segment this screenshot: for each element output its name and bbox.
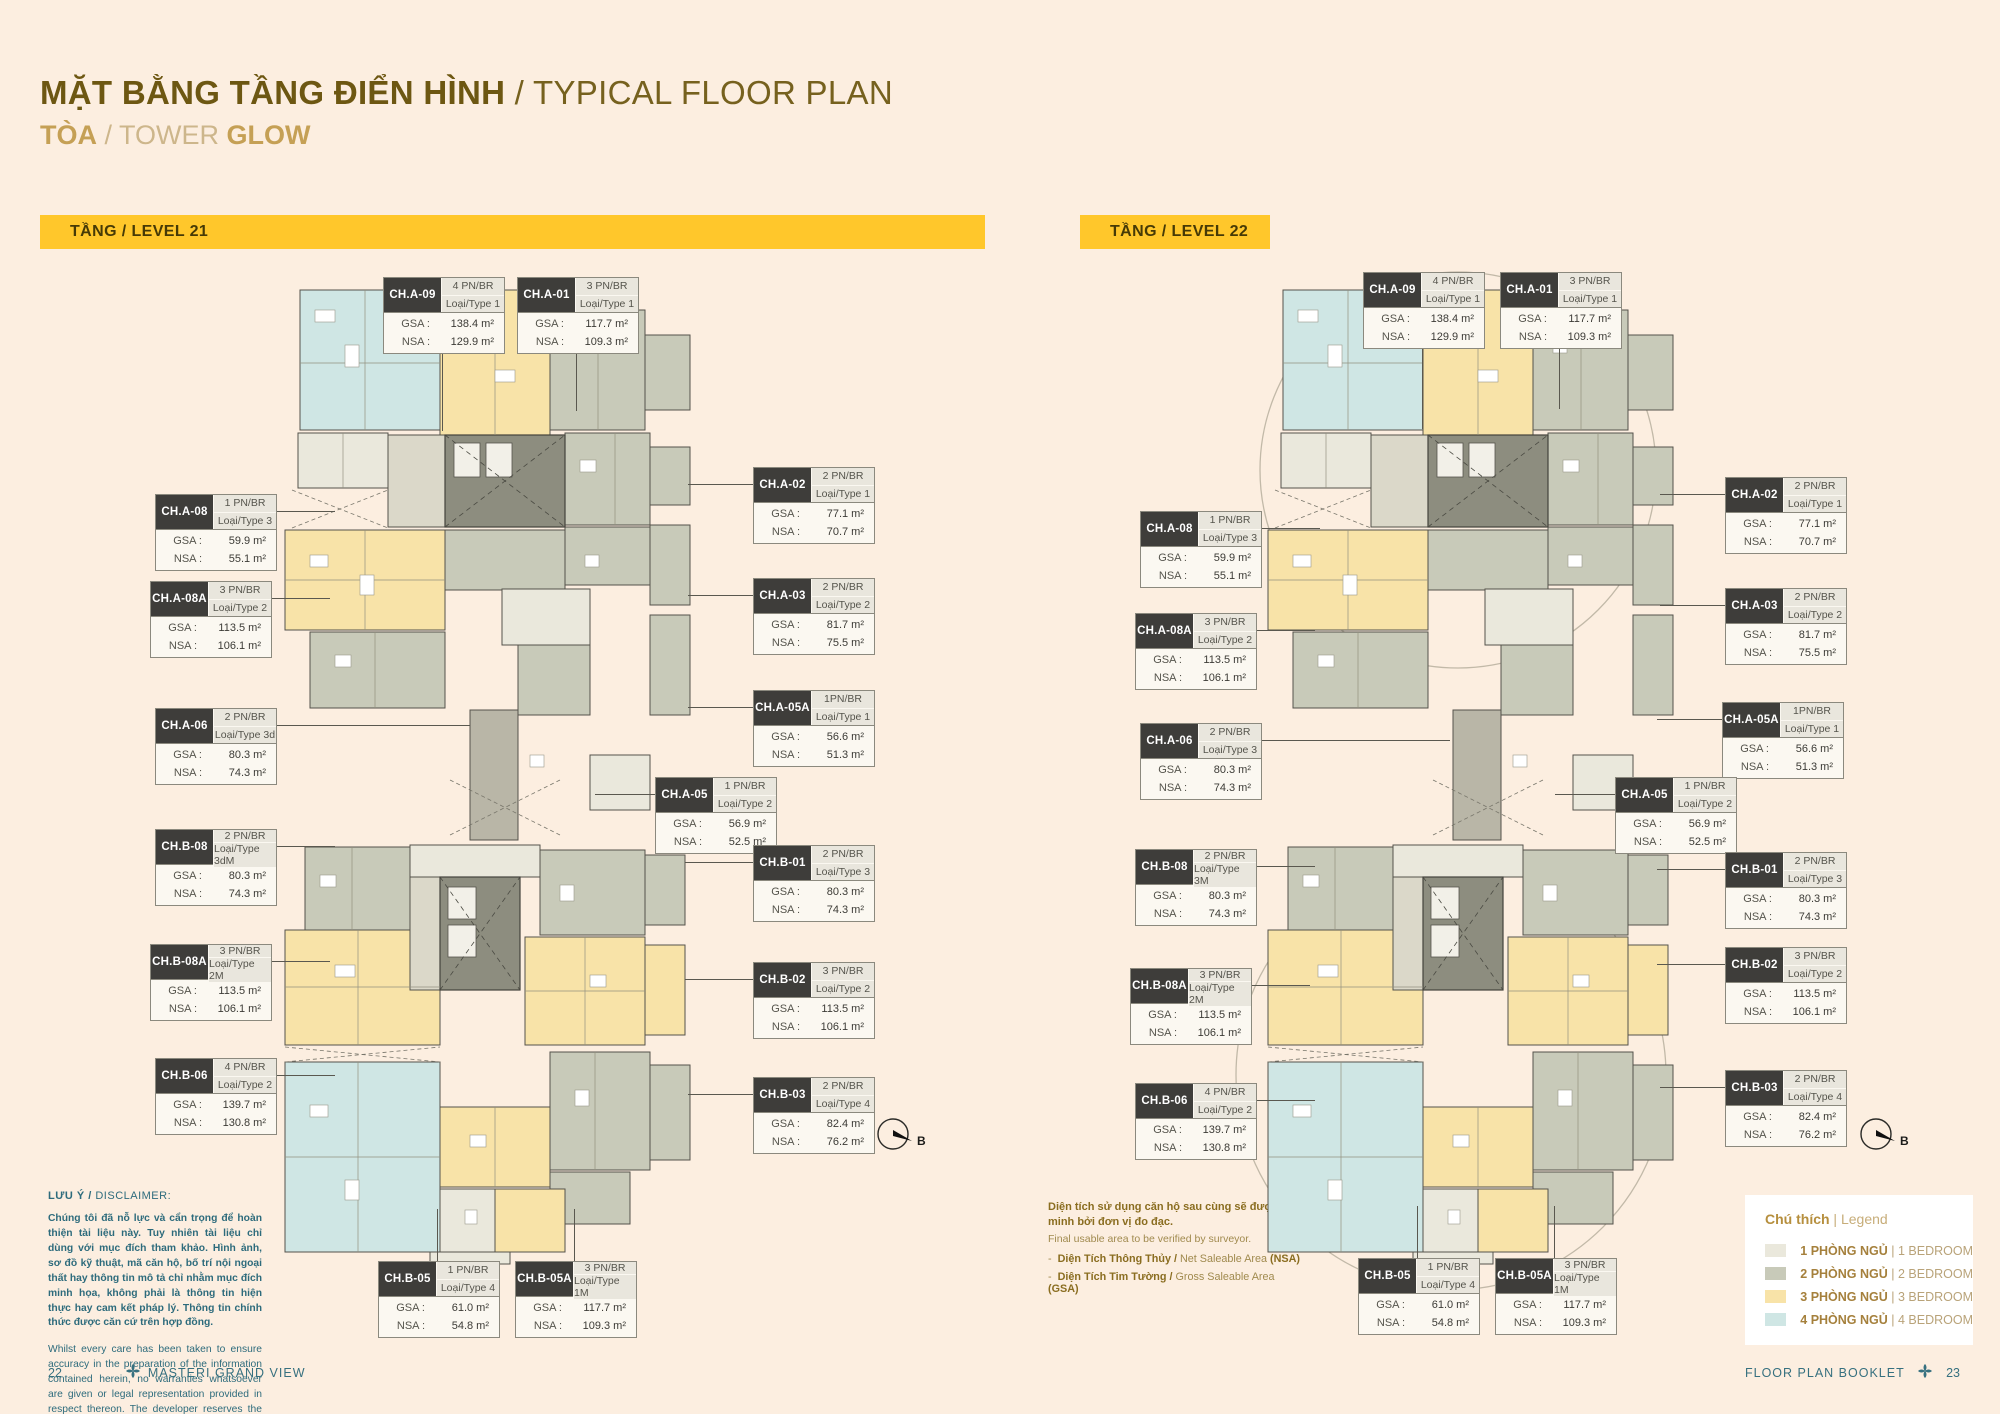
unit-code: CH.B-03 (754, 1078, 811, 1112)
gsa-label: GSA : (1726, 890, 1772, 908)
unit-callout: CH.B-08A 3 PN/BR Loại/Type 2M GSA :113.5… (150, 944, 272, 1021)
unit-type: Loại/Type 2 (811, 981, 874, 998)
gsa-value: 61.0 m² (425, 1299, 499, 1317)
nsa-label: NSA : (1726, 1003, 1772, 1021)
nsa-value: 130.8 m² (202, 1114, 276, 1132)
unit-bedrooms: 1PN/BR (811, 691, 874, 709)
disclaimer-body-vi: Chúng tôi đã nỗ lực và cẩn trọng để hoàn… (48, 1212, 262, 1331)
nsa-label: NSA : (384, 333, 430, 351)
unit-bedrooms: 1 PN/BR (713, 778, 776, 796)
unit-code: CH.A-05A (754, 691, 811, 725)
gsa-label: GSA : (156, 867, 202, 885)
callout-leader-line (1555, 794, 1615, 795)
nsa-label: NSA : (156, 1114, 202, 1132)
footer-left: 22 MASTERI GRAND VIEW (48, 1364, 306, 1381)
callout-leader-line (1417, 1206, 1418, 1258)
nsa-label: NSA : (1359, 1314, 1405, 1332)
unit-type: Loại/Type 2 (1193, 632, 1256, 649)
svg-text:B: B (1900, 1134, 1909, 1148)
gsa-value: 113.5 m² (1177, 1006, 1251, 1024)
gsa-label: GSA : (156, 532, 202, 550)
gsa-value: 80.3 m² (1187, 761, 1261, 779)
nsa-label: NSA : (156, 885, 202, 903)
unit-callout: CH.A-09 4 PN/BR Loại/Type 1 GSA :138.4 m… (1363, 272, 1485, 349)
north-arrow-icon: B (876, 1116, 946, 1161)
nsa-value: 109.3 m² (564, 333, 638, 351)
unit-bedrooms: 1 PN/BR (436, 1262, 499, 1280)
gsa-value: 56.9 m² (1662, 815, 1736, 833)
footer-right: FLOOR PLAN BOOKLET 23 (1745, 1364, 1960, 1381)
nsa-label: NSA : (656, 833, 702, 851)
unit-type: Loại/Type 1 (811, 709, 874, 726)
unit-callout: CH.B-02 3 PN/BR Loại/Type 2 GSA :113.5 m… (1725, 947, 1847, 1024)
unit-bedrooms: 4 PN/BR (1421, 273, 1484, 291)
callout-leader-line (576, 349, 577, 411)
gsa-label: GSA : (1359, 1296, 1405, 1314)
gsa-value: 56.6 m² (1769, 740, 1843, 758)
callout-leader-line (270, 961, 330, 962)
gsa-label: GSA : (1726, 626, 1772, 644)
floor-plan (1223, 275, 1743, 1265)
callout-leader-line (442, 349, 443, 431)
unit-callout: CH.B-01 2 PN/BR Loại/Type 3 GSA :80.3 m²… (1725, 852, 1847, 929)
legend-card: Chú thích | Legend 1 PHÒNG NGỦ | 1 BEDRO… (1745, 1195, 1973, 1345)
unit-callout: CH.A-02 2 PN/BR Loại/Type 1 GSA :77.1 m²… (1725, 477, 1847, 554)
gsa-label: GSA : (1136, 887, 1182, 905)
callout-leader-line (1250, 985, 1310, 986)
gsa-value: 138.4 m² (430, 315, 504, 333)
gsa-value: 117.7 m² (1542, 1296, 1616, 1314)
callout-leader-line (1422, 344, 1423, 429)
unit-code: CH.B-05 (1359, 1259, 1416, 1293)
unit-callout: CH.B-03 2 PN/BR Loại/Type 4 GSA :82.4 m²… (1725, 1070, 1847, 1147)
nsa-label: NSA : (754, 1133, 800, 1151)
brand-name: MASTERI GRAND VIEW (148, 1366, 306, 1380)
gsa-value: 117.7 m² (562, 1299, 636, 1317)
page-title-en: / TYPICAL FLOOR PLAN (505, 74, 893, 111)
unit-type: Loại/Type 1 (1780, 721, 1843, 738)
callout-leader-line (275, 725, 470, 726)
nsa-value: 52.5 m² (1662, 833, 1736, 851)
unit-type: Loại/Type 3 (1198, 530, 1261, 547)
nsa-label: NSA : (754, 901, 800, 919)
gsa-label: GSA : (754, 883, 800, 901)
level-banner: TẦNG / LEVEL 22 (1080, 215, 1270, 249)
unit-code: CH.B-05 (379, 1262, 436, 1296)
unit-callout: CH.B-03 2 PN/BR Loại/Type 4 GSA :82.4 m²… (753, 1077, 875, 1154)
nsa-label: NSA : (516, 1317, 562, 1335)
gsa-value: 80.3 m² (1772, 890, 1846, 908)
callout-leader-line (688, 707, 753, 708)
unit-callout: CH.B-08 2 PN/BR Loại/Type 3dM GSA :80.3 … (155, 829, 277, 906)
legend-swatch (1765, 1267, 1786, 1280)
gsa-value: 56.9 m² (702, 815, 776, 833)
page-title: MẶT BẰNG TẦNG ĐIỂN HÌNH / TYPICAL FLOOR … (40, 74, 893, 112)
unit-code: CH.A-08A (1136, 614, 1193, 648)
unit-code: CH.B-06 (1136, 1084, 1193, 1118)
unit-type: Loại/Type 3d (213, 727, 276, 744)
gsa-label: GSA : (1141, 761, 1187, 779)
callout-leader-line (1260, 740, 1450, 741)
unit-type: Loại/Type 1 (441, 296, 504, 313)
unit-callout: CH.A-05 1 PN/BR Loại/Type 2 GSA :56.9 m²… (1615, 777, 1737, 854)
unit-bedrooms: 3 PN/BR (1783, 948, 1846, 966)
nsa-label: NSA : (1141, 779, 1187, 797)
callout-leader-line (688, 1094, 753, 1095)
unit-bedrooms: 2 PN/BR (811, 846, 874, 864)
gsa-value: 113.5 m² (197, 619, 271, 637)
unit-code: CH.B-01 (754, 846, 811, 880)
nsa-value: 109.3 m² (1542, 1314, 1616, 1332)
unit-type: Loại/Type 3 (811, 864, 874, 881)
gsa-label: GSA : (656, 815, 702, 833)
unit-type: Loại/Type 1 (1558, 291, 1621, 308)
unit-callout: CH.A-08 1 PN/BR Loại/Type 3 GSA :59.9 m²… (1140, 511, 1262, 588)
unit-bedrooms: 3 PN/BR (1558, 273, 1621, 291)
gsa-label: GSA : (379, 1299, 425, 1317)
unit-bedrooms: 3 PN/BR (811, 963, 874, 981)
unit-bedrooms: 3 PN/BR (573, 1262, 636, 1275)
unit-callout: CH.A-01 3 PN/BR Loại/Type 1 GSA :117.7 m… (517, 277, 639, 354)
unit-callout: CH.A-05 1 PN/BR Loại/Type 2 GSA :56.9 m²… (655, 777, 777, 854)
unit-type: Loại/Type 3M (1193, 863, 1256, 887)
unit-type: Loại/Type 4 (436, 1280, 499, 1297)
unit-code: CH.A-09 (1364, 273, 1421, 307)
unit-type: Loại/Type 2 (713, 796, 776, 813)
gsa-value: 113.5 m² (1772, 985, 1846, 1003)
unit-code: CH.B-02 (1726, 948, 1783, 982)
nsa-value: 55.1 m² (202, 550, 276, 568)
nsa-label: NSA : (1496, 1314, 1542, 1332)
nsa-label: NSA : (1131, 1024, 1177, 1042)
gsa-label: GSA : (156, 746, 202, 764)
svg-text:B: B (917, 1134, 926, 1148)
gsa-label: GSA : (1131, 1006, 1177, 1024)
gsa-value: 117.7 m² (564, 315, 638, 333)
gsa-value: 138.4 m² (1410, 310, 1484, 328)
unit-code: CH.A-03 (754, 579, 811, 613)
gsa-label: GSA : (754, 1115, 800, 1133)
nsa-label: NSA : (156, 764, 202, 782)
nsa-value: 55.1 m² (1187, 567, 1261, 585)
legend-swatch (1765, 1313, 1786, 1326)
unit-type: Loại/Type 2 (213, 1077, 276, 1094)
unit-callout: CH.A-01 3 PN/BR Loại/Type 1 GSA :117.7 m… (1500, 272, 1622, 349)
unit-bedrooms: 1 PN/BR (1416, 1259, 1479, 1277)
unit-callout: CH.A-06 2 PN/BR Loại/Type 3d GSA :80.3 m… (155, 708, 277, 785)
callout-leader-line (1657, 964, 1725, 965)
footer-page-number-left: 22 (48, 1366, 62, 1380)
unit-type: Loại/Type 2M (1188, 982, 1251, 1006)
unit-bedrooms: 2 PN/BR (213, 709, 276, 727)
gsa-value: 113.5 m² (800, 1000, 874, 1018)
unit-type: Loại/Type 3 (213, 513, 276, 530)
unit-callout: CH.B-05 1 PN/BR Loại/Type 4 GSA :61.0 m²… (378, 1261, 500, 1338)
unit-code: CH.B-08A (151, 945, 208, 979)
gsa-label: GSA : (516, 1299, 562, 1317)
unit-bedrooms: 2 PN/BR (811, 1078, 874, 1096)
nsa-value: 74.3 m² (1182, 905, 1256, 923)
nsa-value: 106.1 m² (1177, 1024, 1251, 1042)
callout-leader-line (574, 1209, 575, 1261)
gsa-label: GSA : (151, 982, 197, 1000)
unit-code: CH.A-01 (518, 278, 575, 312)
callout-leader-line (1554, 1206, 1555, 1258)
nsa-value: 76.2 m² (1772, 1126, 1846, 1144)
unit-code: CH.A-05 (656, 778, 713, 812)
gsa-label: GSA : (1136, 651, 1182, 669)
unit-callout: CH.B-01 2 PN/BR Loại/Type 3 GSA :80.3 m²… (753, 845, 875, 922)
callout-leader-line (1260, 528, 1320, 529)
gsa-value: 59.9 m² (1187, 549, 1261, 567)
nsa-value: 74.3 m² (1772, 908, 1846, 926)
nsa-value: 106.1 m² (197, 637, 271, 655)
gsa-value: 81.7 m² (800, 616, 874, 634)
gsa-label: GSA : (156, 1096, 202, 1114)
nsa-label: NSA : (1501, 328, 1547, 346)
gsa-label: GSA : (754, 616, 800, 634)
unit-type: Loại/Type 2 (1193, 1102, 1256, 1119)
unit-bedrooms: 2 PN/BR (1193, 850, 1256, 863)
nsa-value: 106.1 m² (800, 1018, 874, 1036)
unit-code: CH.A-06 (1141, 724, 1198, 758)
legend-label: 2 PHÒNG NGỦ | 2 BEDROOM (1800, 1267, 1973, 1281)
nsa-value: 54.8 m² (425, 1317, 499, 1335)
nsa-value: 74.3 m² (800, 901, 874, 919)
gsa-value: 117.7 m² (1547, 310, 1621, 328)
gsa-value: 56.6 m² (800, 728, 874, 746)
gsa-label: GSA : (384, 315, 430, 333)
unit-code: CH.B-08 (156, 830, 213, 864)
unit-callout: CH.B-06 4 PN/BR Loại/Type 2 GSA :139.7 m… (155, 1058, 277, 1135)
gsa-value: 113.5 m² (197, 982, 271, 1000)
nsa-value: 75.5 m² (1772, 644, 1846, 662)
nsa-label: NSA : (1141, 567, 1187, 585)
unit-type: Loại/Type 4 (1783, 1089, 1846, 1106)
unit-callout: CH.A-02 2 PN/BR Loại/Type 1 GSA :77.1 m²… (753, 467, 875, 544)
gsa-label: GSA : (1616, 815, 1662, 833)
unit-type: Loại/Type 4 (811, 1096, 874, 1113)
nsa-label: NSA : (754, 1018, 800, 1036)
gsa-value: 81.7 m² (1772, 626, 1846, 644)
gsa-label: GSA : (754, 1000, 800, 1018)
nsa-label: NSA : (1616, 833, 1662, 851)
callout-leader-line (685, 979, 753, 980)
unit-bedrooms: 2 PN/BR (213, 830, 276, 843)
unit-bedrooms: 1 PN/BR (213, 495, 276, 513)
masteri-logo-icon (126, 1364, 140, 1381)
gsa-label: GSA : (1726, 985, 1772, 1003)
unit-callout: CH.A-03 2 PN/BR Loại/Type 2 GSA :81.7 m²… (1725, 588, 1847, 665)
unit-type: Loại/Type 3dM (213, 843, 276, 867)
gsa-label: GSA : (754, 728, 800, 746)
nsa-value: 70.7 m² (1772, 533, 1846, 551)
gsa-value: 80.3 m² (202, 867, 276, 885)
unit-type: Loại/Type 4 (1416, 1277, 1479, 1294)
unit-type: Loại/Type 1M (1553, 1272, 1616, 1296)
unit-bedrooms: 2 PN/BR (811, 579, 874, 597)
unit-callout: CH.A-05A 1PN/BR Loại/Type 1 GSA :56.6 m²… (753, 690, 875, 767)
unit-type: Loại/Type 1 (1783, 496, 1846, 513)
legend-swatch (1765, 1244, 1786, 1257)
tower-name: GLOW (227, 120, 311, 150)
unit-code: CH.A-03 (1726, 589, 1783, 623)
nsa-label: NSA : (518, 333, 564, 351)
nsa-label: NSA : (151, 637, 197, 655)
unit-bedrooms: 1 PN/BR (1198, 512, 1261, 530)
unit-bedrooms: 3 PN/BR (1193, 614, 1256, 632)
unit-code: CH.B-02 (754, 963, 811, 997)
unit-callout: CH.A-06 2 PN/BR Loại/Type 3 GSA :80.3 m²… (1140, 723, 1262, 800)
nsa-label: NSA : (1136, 905, 1182, 923)
unit-type: Loại/Type 2 (208, 600, 271, 617)
unit-code: CH.B-08 (1136, 850, 1193, 884)
gsa-value: 80.3 m² (1182, 887, 1256, 905)
unit-callout: CH.A-03 2 PN/BR Loại/Type 2 GSA :81.7 m²… (753, 578, 875, 655)
unit-code: CH.B-08A (1131, 969, 1188, 1003)
nsa-value: 51.3 m² (800, 746, 874, 764)
north-arrow-icon: B (1859, 1116, 1929, 1161)
unit-code: CH.B-03 (1726, 1071, 1783, 1105)
unit-callout: CH.A-05A 1PN/BR Loại/Type 1 GSA :56.6 m²… (1722, 702, 1844, 779)
unit-callout: CH.B-08 2 PN/BR Loại/Type 3M GSA :80.3 m… (1135, 849, 1257, 926)
unit-type: Loại/Type 1M (573, 1275, 636, 1299)
area-note-bullet: - Diện Tích Tim Tường / Gross Saleable A… (1048, 1271, 1308, 1295)
gsa-value: 113.5 m² (1182, 651, 1256, 669)
legend-swatch (1765, 1290, 1786, 1303)
unit-callout: CH.A-08A 3 PN/BR Loại/Type 2 GSA :113.5 … (1135, 613, 1257, 690)
callout-leader-line (688, 484, 753, 485)
unit-type: Loại/Type 2M (208, 958, 271, 982)
unit-code: CH.A-02 (754, 468, 811, 502)
gsa-value: 82.4 m² (1772, 1108, 1846, 1126)
gsa-value: 59.9 m² (202, 532, 276, 550)
gsa-label: GSA : (1723, 740, 1769, 758)
unit-type: Loại/Type 1 (575, 296, 638, 313)
gsa-label: GSA : (1136, 1121, 1182, 1139)
unit-type: Loại/Type 2 (1673, 796, 1736, 813)
legend-title: Chú thích | Legend (1765, 1211, 1973, 1227)
unit-code: CH.A-08 (1141, 512, 1198, 546)
unit-bedrooms: 3 PN/BR (575, 278, 638, 296)
unit-bedrooms: 3 PN/BR (208, 945, 271, 958)
unit-callout: CH.B-05 1 PN/BR Loại/Type 4 GSA :61.0 m²… (1358, 1258, 1480, 1335)
unit-bedrooms: 1PN/BR (1780, 703, 1843, 721)
nsa-value: 109.3 m² (1547, 328, 1621, 346)
level-banner: TẦNG / LEVEL 21 (40, 215, 985, 249)
unit-bedrooms: 3 PN/BR (1188, 969, 1251, 982)
nsa-value: 74.3 m² (1187, 779, 1261, 797)
nsa-value: 75.5 m² (800, 634, 874, 652)
callout-leader-line (437, 1209, 438, 1261)
unit-type: Loại/Type 3 (1783, 871, 1846, 888)
callout-leader-line (1660, 1087, 1725, 1088)
nsa-value: 70.7 m² (800, 523, 874, 541)
callout-leader-line (270, 598, 330, 599)
booklet-label: FLOOR PLAN BOOKLET (1745, 1366, 1905, 1380)
nsa-label: NSA : (1726, 533, 1772, 551)
nsa-label: NSA : (379, 1317, 425, 1335)
unit-bedrooms: 2 PN/BR (1783, 589, 1846, 607)
gsa-value: 77.1 m² (1772, 515, 1846, 533)
subtitle-vi: TÒA (40, 120, 97, 150)
gsa-value: 77.1 m² (800, 505, 874, 523)
unit-code: CH.B-01 (1726, 853, 1783, 887)
gsa-label: GSA : (1726, 515, 1772, 533)
callout-leader-line (1255, 866, 1315, 867)
unit-callout: CH.B-06 4 PN/BR Loại/Type 2 GSA :139.7 m… (1135, 1083, 1257, 1160)
subtitle-mid: / TOWER (97, 120, 227, 150)
unit-callout: CH.B-05A 3 PN/BR Loại/Type 1M GSA :117.7… (515, 1261, 637, 1338)
unit-bedrooms: 2 PN/BR (811, 468, 874, 486)
unit-code: CH.A-06 (156, 709, 213, 743)
callout-leader-line (1660, 605, 1725, 606)
unit-callout: CH.A-08A 3 PN/BR Loại/Type 2 GSA :113.5 … (150, 581, 272, 658)
gsa-value: 80.3 m² (800, 883, 874, 901)
nsa-label: NSA : (1726, 644, 1772, 662)
unit-code: CH.B-06 (156, 1059, 213, 1093)
gsa-label: GSA : (1496, 1296, 1542, 1314)
unit-bedrooms: 4 PN/BR (213, 1059, 276, 1077)
unit-code: CH.A-08 (156, 495, 213, 529)
unit-bedrooms: 4 PN/BR (1193, 1084, 1256, 1102)
nsa-value: 106.1 m² (1772, 1003, 1846, 1021)
callout-leader-line (1255, 1100, 1315, 1101)
unit-bedrooms: 3 PN/BR (1553, 1259, 1616, 1272)
gsa-label: GSA : (1726, 1108, 1772, 1126)
gsa-label: GSA : (1501, 310, 1547, 328)
page-subtitle: TÒA / TOWER GLOW (40, 120, 311, 151)
page-title-vi: MẶT BẰNG TẦNG ĐIỂN HÌNH (40, 74, 505, 111)
unit-code: CH.A-08A (151, 582, 208, 616)
nsa-value: 74.3 m² (202, 885, 276, 903)
callout-leader-line (275, 846, 335, 847)
gsa-label: GSA : (1364, 310, 1410, 328)
page: MẶT BẰNG TẦNG ĐIỂN HÌNH / TYPICAL FLOOR … (0, 0, 2000, 1414)
nsa-label: NSA : (1136, 669, 1182, 687)
unit-code: CH.A-01 (1501, 273, 1558, 307)
unit-callout: CH.B-08A 3 PN/BR Loại/Type 2M GSA :113.5… (1130, 968, 1252, 1045)
unit-type: Loại/Type 2 (1783, 607, 1846, 624)
callout-leader-line (1657, 869, 1725, 870)
unit-bedrooms: 1 PN/BR (1673, 778, 1736, 796)
callout-leader-line (685, 862, 753, 863)
nsa-label: NSA : (754, 746, 800, 764)
legend-row: 4 PHÒNG NGỦ | 4 BEDROOM (1765, 1308, 1973, 1331)
nsa-value: 129.9 m² (430, 333, 504, 351)
floor-plan (240, 275, 760, 1265)
unit-code: CH.B-05A (1496, 1259, 1553, 1293)
unit-type: Loại/Type 1 (811, 486, 874, 503)
callout-leader-line (275, 511, 335, 512)
unit-code: CH.A-02 (1726, 478, 1783, 512)
unit-callout: CH.A-09 4 PN/BR Loại/Type 1 GSA :138.4 m… (383, 277, 505, 354)
unit-bedrooms: 2 PN/BR (1198, 724, 1261, 742)
nsa-label: NSA : (1364, 328, 1410, 346)
unit-callout: CH.B-05A 3 PN/BR Loại/Type 1M GSA :117.7… (1495, 1258, 1617, 1335)
unit-bedrooms: 3 PN/BR (208, 582, 271, 600)
nsa-label: NSA : (754, 634, 800, 652)
unit-bedrooms: 4 PN/BR (441, 278, 504, 296)
gsa-label: GSA : (518, 315, 564, 333)
gsa-value: 82.4 m² (800, 1115, 874, 1133)
nsa-value: 54.8 m² (1405, 1314, 1479, 1332)
callout-leader-line (1657, 719, 1722, 720)
nsa-label: NSA : (156, 550, 202, 568)
nsa-value: 106.1 m² (197, 1000, 271, 1018)
masteri-logo-icon (1918, 1364, 1932, 1381)
callout-leader-line (1255, 630, 1315, 631)
